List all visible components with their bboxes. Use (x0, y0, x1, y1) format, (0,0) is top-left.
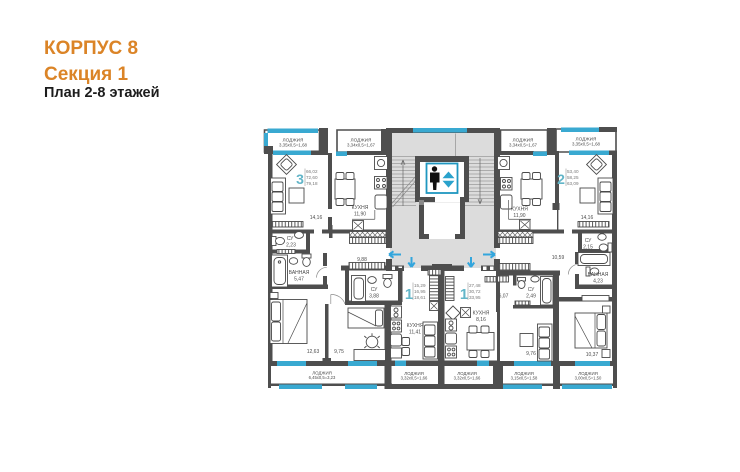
svg-text:3: 3 (296, 171, 304, 187)
svg-text:3,34х0,5=1,67: 3,34х0,5=1,67 (347, 142, 376, 147)
svg-text:9,76: 9,76 (526, 351, 536, 357)
svg-text:4,23: 4,23 (593, 279, 603, 285)
svg-text:5,47: 5,47 (294, 277, 304, 283)
svg-text:8,16: 8,16 (476, 317, 486, 323)
svg-text:2,49: 2,49 (526, 294, 536, 300)
svg-text:63,09: 63,09 (567, 181, 579, 186)
svg-text:КУХНЯ: КУХНЯ (473, 311, 490, 317)
svg-text:66,02: 66,02 (306, 169, 318, 174)
svg-text:15,29: 15,29 (414, 283, 426, 288)
svg-text:2: 2 (557, 171, 565, 187)
svg-text:11,90: 11,90 (354, 212, 366, 218)
svg-text:33,95: 33,95 (469, 295, 481, 300)
svg-text:3,88: 3,88 (369, 294, 379, 300)
svg-text:10,59: 10,59 (552, 255, 565, 261)
svg-text:14,16: 14,16 (581, 215, 594, 221)
svg-text:18,61: 18,61 (414, 295, 426, 300)
svg-text:53,40: 53,40 (567, 169, 579, 174)
svg-text:12,63: 12,63 (307, 349, 320, 355)
svg-text:СУ: СУ (528, 287, 535, 293)
svg-text:ВАННАЯ: ВАННАЯ (588, 272, 609, 278)
svg-text:58,25: 58,25 (567, 175, 579, 180)
svg-text:2,23: 2,23 (286, 243, 296, 249)
svg-text:ВАННАЯ: ВАННАЯ (289, 270, 310, 276)
svg-text:72,60: 72,60 (306, 175, 318, 180)
svg-text:1: 1 (405, 286, 413, 303)
svg-text:3,32х0,5=1,66: 3,32х0,5=1,66 (454, 375, 481, 380)
svg-text:КУХНЯ: КУХНЯ (352, 205, 369, 211)
svg-text:6,07: 6,07 (499, 294, 509, 300)
svg-text:3,35х0,5=1,68: 3,35х0,5=1,68 (572, 141, 601, 146)
svg-text:27,48: 27,48 (469, 283, 481, 288)
svg-text:СУ: СУ (585, 238, 592, 244)
svg-text:3,32х0,5=1,66: 3,32х0,5=1,66 (401, 375, 428, 380)
svg-text:11,41: 11,41 (409, 330, 421, 336)
svg-text:30,72: 30,72 (469, 289, 481, 294)
svg-text:6,45х0,5=3,23: 6,45х0,5=3,23 (309, 375, 336, 380)
svg-text:3,35х0,5=1,68: 3,35х0,5=1,68 (279, 142, 308, 147)
svg-text:9,75: 9,75 (334, 349, 344, 355)
svg-text:КУХНЯ: КУХНЯ (407, 323, 424, 329)
svg-text:2,15: 2,15 (583, 245, 593, 251)
svg-text:СУ: СУ (371, 287, 378, 293)
svg-text:79,18: 79,18 (306, 181, 318, 186)
svg-text:1: 1 (460, 286, 468, 303)
svg-text:9,88: 9,88 (357, 257, 367, 263)
svg-text:11,90: 11,90 (513, 213, 525, 219)
svg-text:КУХНЯ: КУХНЯ (511, 207, 528, 213)
svg-text:16,95: 16,95 (414, 289, 426, 294)
svg-text:СУ: СУ (287, 236, 294, 242)
svg-text:3,00х0,5=1,50: 3,00х0,5=1,50 (575, 375, 602, 380)
svg-text:3,15х0,5=1,58: 3,15х0,5=1,58 (511, 375, 538, 380)
svg-text:3,34х0,5=1,67: 3,34х0,5=1,67 (509, 142, 538, 147)
svg-text:10,37: 10,37 (586, 352, 599, 358)
svg-text:14,16: 14,16 (310, 215, 323, 221)
